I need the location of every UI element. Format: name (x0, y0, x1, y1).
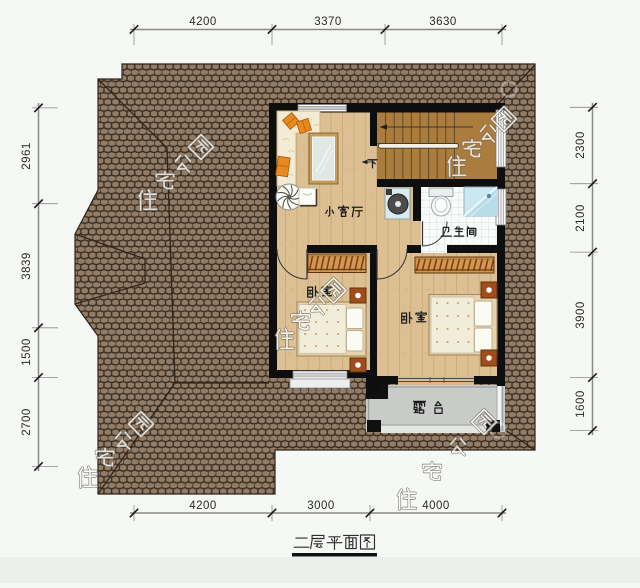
svg-text:2100: 2100 (575, 204, 587, 232)
svg-text:1600: 1600 (575, 390, 587, 418)
svg-text:4000: 4000 (422, 500, 450, 512)
svg-text:2700: 2700 (21, 408, 33, 436)
svg-text:3630: 3630 (429, 16, 457, 28)
svg-text:2300: 2300 (575, 131, 587, 159)
svg-text:2961: 2961 (21, 142, 33, 170)
svg-text:3839: 3839 (21, 252, 33, 280)
svg-text:3370: 3370 (314, 16, 342, 28)
svg-text:1500: 1500 (21, 338, 33, 366)
svg-text:3000: 3000 (307, 500, 335, 512)
svg-text:4200: 4200 (189, 500, 217, 512)
svg-text:4200: 4200 (189, 16, 217, 28)
svg-text:3900: 3900 (575, 301, 587, 329)
